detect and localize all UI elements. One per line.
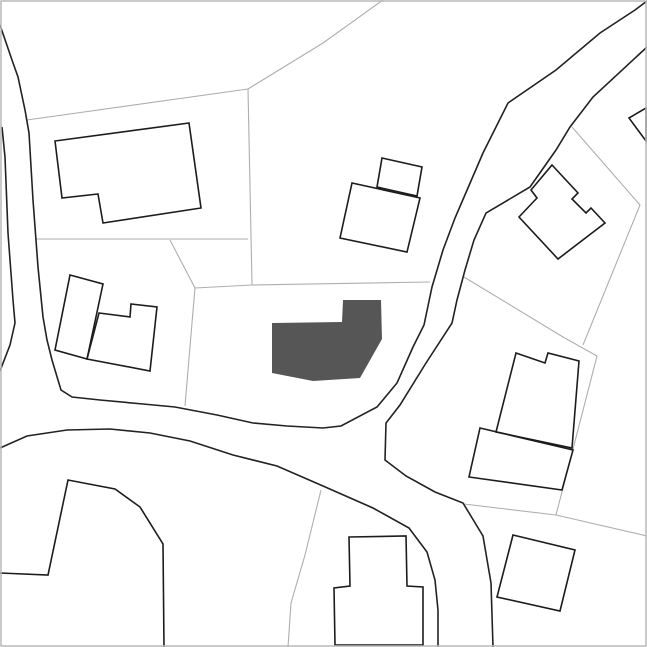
site-plan-map <box>0 0 647 647</box>
site-plan-svg[interactable] <box>0 0 647 647</box>
